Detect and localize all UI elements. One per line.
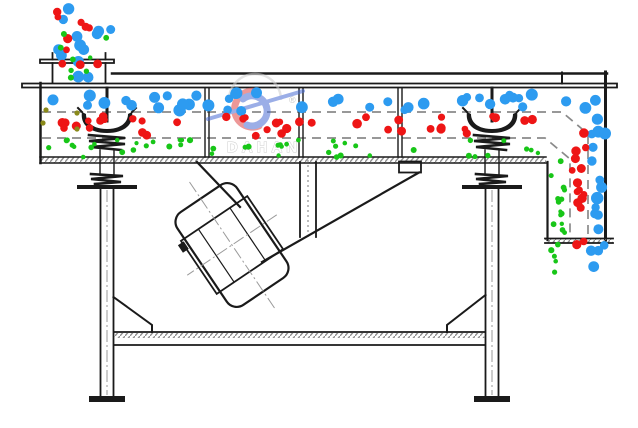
particle — [70, 57, 76, 63]
particle — [177, 98, 188, 109]
particle — [243, 145, 248, 150]
particle — [103, 35, 109, 41]
particle — [64, 138, 70, 144]
particle — [362, 113, 370, 121]
particle — [411, 147, 417, 153]
particle — [276, 153, 280, 157]
particle — [575, 200, 582, 207]
particle — [202, 99, 214, 111]
particle — [48, 94, 59, 105]
particle — [115, 138, 120, 143]
particle — [551, 221, 557, 227]
particle — [86, 124, 94, 132]
particle — [558, 213, 563, 218]
particle — [518, 102, 527, 111]
watermark-blue-arc — [243, 96, 267, 126]
particle — [577, 164, 586, 173]
particle — [173, 118, 181, 126]
particle — [223, 106, 232, 115]
particle — [121, 96, 130, 105]
particle — [308, 119, 316, 127]
particle — [53, 8, 61, 16]
particle — [76, 60, 85, 69]
particle — [74, 126, 79, 131]
particle — [438, 114, 445, 121]
particle — [560, 227, 566, 233]
brace-right — [447, 295, 486, 332]
particle — [437, 123, 446, 132]
particle — [276, 143, 281, 148]
particle — [83, 72, 94, 83]
particle — [394, 116, 403, 125]
watermark-brand-text: DAHAN — [227, 139, 301, 156]
discharge-col-red — [569, 128, 590, 249]
particle — [343, 141, 348, 146]
particle — [210, 146, 216, 152]
particle — [561, 185, 567, 191]
particle — [46, 145, 51, 150]
particle — [536, 151, 540, 155]
particle — [501, 138, 506, 143]
particle — [83, 101, 92, 110]
particle — [397, 127, 406, 136]
particle — [84, 90, 96, 102]
particle — [591, 192, 603, 204]
discharge-col-green — [548, 158, 567, 274]
particle — [328, 97, 338, 107]
particle — [457, 95, 468, 106]
particle — [588, 130, 597, 139]
particle — [594, 246, 604, 256]
particle — [251, 87, 262, 98]
particle — [580, 191, 587, 198]
particle — [149, 92, 160, 103]
particle — [593, 224, 603, 234]
particle — [296, 101, 308, 113]
particle — [239, 115, 247, 123]
diagram-canvas: ® DAHAN — [0, 0, 638, 428]
particle — [60, 124, 68, 132]
particle — [106, 25, 115, 34]
support-leg-right — [474, 189, 510, 402]
particle — [85, 118, 92, 125]
particle — [187, 137, 193, 143]
particle — [595, 176, 604, 185]
particle — [230, 89, 240, 99]
vibrating-screen-diagram: ® DAHAN — [0, 0, 638, 428]
particle — [84, 69, 89, 74]
particle — [590, 95, 601, 106]
particle — [78, 19, 85, 26]
particle — [92, 29, 103, 40]
particle — [88, 145, 94, 151]
particle — [333, 144, 338, 149]
particle — [549, 173, 554, 178]
particle — [526, 89, 538, 101]
watermark-registered-mark: ® — [289, 95, 296, 105]
particle — [368, 153, 373, 158]
particle — [284, 142, 289, 147]
particle — [555, 242, 561, 248]
particle — [151, 140, 156, 145]
particle — [93, 60, 102, 69]
particle — [166, 144, 172, 150]
particle — [138, 128, 147, 137]
particle — [508, 93, 518, 103]
particle — [573, 178, 582, 187]
foot-plate — [89, 396, 125, 402]
particle — [81, 155, 86, 160]
lower-coil-spring — [91, 174, 123, 184]
particle — [489, 113, 496, 120]
particle — [529, 148, 534, 153]
particle — [588, 261, 599, 272]
particle — [552, 254, 557, 259]
discharge-col-blue — [586, 114, 611, 272]
bracket-strut-right — [262, 173, 419, 263]
particle — [463, 129, 471, 137]
particle — [579, 128, 589, 138]
particle — [418, 98, 430, 110]
particle — [178, 142, 183, 147]
particle — [403, 102, 414, 113]
particle — [331, 139, 336, 144]
particle — [63, 46, 70, 53]
particle — [384, 126, 392, 134]
particle — [180, 138, 184, 142]
particle — [134, 141, 138, 145]
particle — [383, 97, 392, 106]
particle — [295, 117, 304, 126]
particle — [569, 167, 576, 174]
particle — [99, 97, 111, 109]
particle — [556, 199, 562, 205]
particle — [352, 119, 362, 129]
particle — [272, 119, 281, 128]
particle — [88, 55, 92, 59]
particle — [131, 147, 137, 153]
top-cover — [22, 84, 617, 88]
particle — [475, 94, 484, 103]
particle — [466, 153, 472, 159]
particle — [73, 71, 85, 83]
particle — [548, 247, 554, 253]
particle — [528, 115, 537, 124]
particle — [599, 128, 611, 140]
leg-top-plate — [462, 185, 522, 189]
particle — [61, 31, 67, 37]
support-leg-left — [89, 189, 125, 402]
particle — [587, 156, 596, 165]
particle — [58, 45, 64, 51]
particle — [63, 3, 74, 14]
particle — [561, 96, 571, 106]
brace-left — [114, 297, 153, 332]
particle — [552, 270, 557, 275]
particle — [68, 68, 73, 73]
particle — [210, 151, 215, 156]
particle — [473, 154, 478, 159]
particle — [99, 112, 108, 121]
particle — [70, 143, 75, 148]
lower-coil-spring — [476, 174, 508, 184]
leg-top-plate — [77, 185, 137, 189]
particle — [68, 75, 74, 81]
particle — [365, 103, 374, 112]
particle — [468, 138, 473, 143]
particle — [191, 91, 201, 101]
particle — [485, 153, 490, 158]
particle — [129, 115, 136, 122]
particle — [591, 203, 599, 211]
particle — [558, 158, 564, 164]
particle — [326, 150, 331, 155]
particle — [338, 153, 344, 159]
motor-bracket — [197, 160, 421, 262]
particle — [40, 120, 45, 125]
particle — [572, 240, 581, 249]
particle — [524, 146, 529, 151]
particles — [40, 3, 611, 275]
particle — [139, 117, 146, 124]
particle — [588, 143, 597, 152]
particle — [571, 154, 580, 163]
particle — [252, 132, 260, 140]
particle — [264, 126, 271, 133]
particle — [282, 124, 291, 133]
particle — [592, 114, 603, 125]
particle — [520, 116, 529, 125]
cross-beam — [114, 332, 485, 345]
particle — [144, 143, 149, 148]
particle — [553, 259, 558, 264]
particle — [222, 113, 230, 121]
particle — [560, 222, 564, 226]
particle — [296, 138, 301, 143]
particle — [119, 149, 125, 155]
particle — [427, 125, 435, 133]
particle — [74, 110, 79, 115]
particle — [153, 102, 164, 113]
particle — [582, 144, 589, 151]
particle — [43, 107, 48, 112]
particle — [353, 143, 358, 148]
particle — [58, 60, 66, 68]
particle — [485, 99, 495, 109]
foot-plate — [474, 396, 510, 402]
particle — [163, 91, 172, 100]
particle — [580, 102, 592, 114]
particle — [72, 31, 83, 42]
